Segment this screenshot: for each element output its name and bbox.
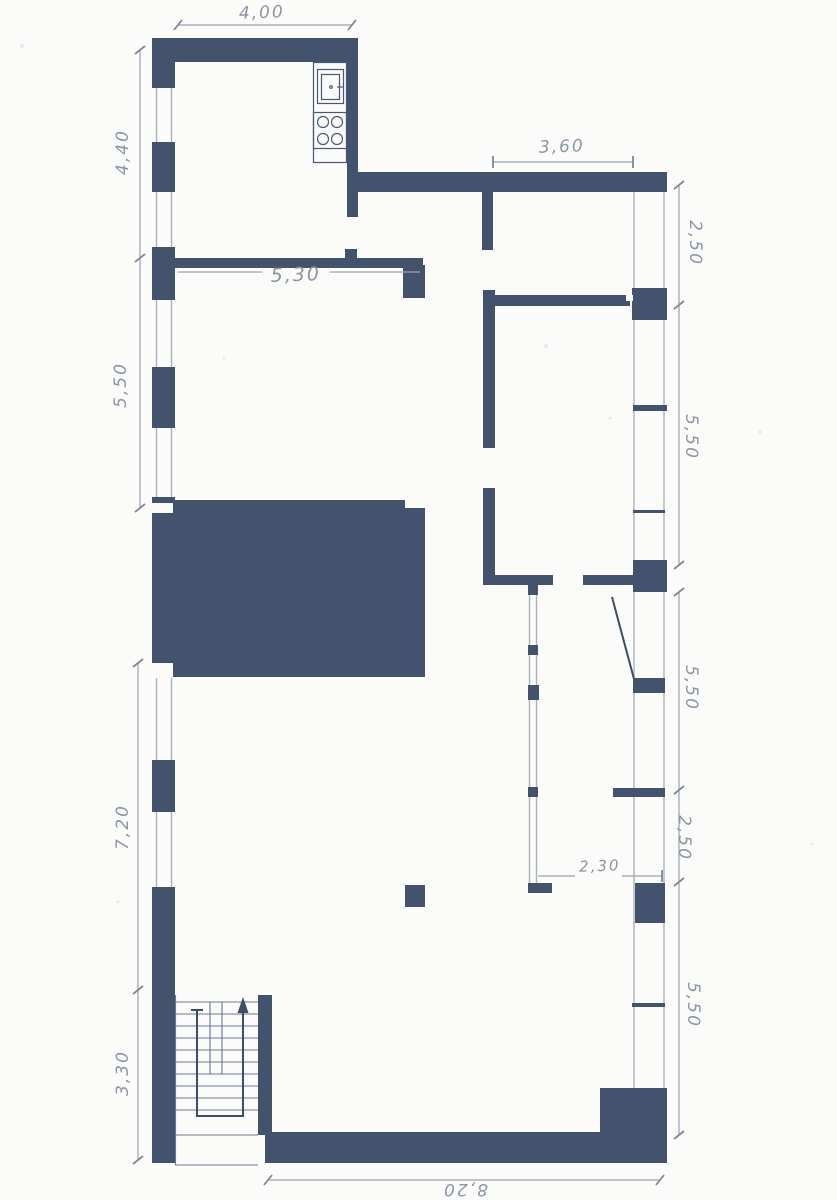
wall-interior-vertical bbox=[483, 488, 495, 585]
up-arrow-icon bbox=[238, 997, 249, 1013]
wall-kitchen-right bbox=[347, 62, 358, 217]
burner bbox=[332, 117, 343, 128]
wall-interior-vertical bbox=[483, 290, 495, 448]
smudge bbox=[544, 344, 548, 348]
wall-left-segment bbox=[152, 497, 175, 503]
wall-stub bbox=[482, 192, 493, 250]
wall-interior-horizontal bbox=[495, 295, 630, 306]
staircase bbox=[175, 995, 258, 1165]
dim-label-room-top-right: 3,60 bbox=[539, 136, 586, 158]
wall-interior-horizontal bbox=[495, 575, 553, 585]
smudge bbox=[222, 356, 225, 359]
window-transom bbox=[632, 1003, 665, 1007]
dim-label-right-1: 2,50 bbox=[685, 220, 705, 266]
dim-label-left-3: 7,20 bbox=[113, 804, 133, 850]
dim-label-left-4: 3,30 bbox=[113, 1050, 133, 1096]
floor-plan-drawing: 4,00 4,40 5,50 7,20 3,30 2,50 5,50 5,50 … bbox=[0, 0, 837, 1200]
dim-label-left-2: 5,50 bbox=[111, 362, 131, 408]
burner bbox=[318, 117, 329, 128]
column bbox=[405, 885, 425, 907]
partition-post bbox=[528, 645, 538, 655]
sink-basin bbox=[322, 75, 340, 100]
wall-notches bbox=[405, 295, 633, 508]
smudge bbox=[117, 901, 120, 904]
dim-label-room-lower-right: 2,30 bbox=[579, 856, 621, 875]
wall-stub bbox=[345, 249, 357, 258]
kitchen-fixtures bbox=[314, 63, 347, 163]
wall-left-segment bbox=[152, 513, 175, 663]
walls bbox=[152, 38, 667, 1163]
smudge bbox=[811, 843, 814, 846]
wall-notch bbox=[626, 295, 633, 301]
wall-right-segment bbox=[633, 678, 665, 693]
partition-base bbox=[528, 883, 552, 893]
stove-icon bbox=[314, 113, 347, 149]
door-swing-line bbox=[612, 597, 634, 679]
wall-left-segment bbox=[152, 760, 175, 812]
wall-left-segment bbox=[152, 367, 175, 428]
smudge bbox=[609, 417, 612, 420]
wall-left-segment bbox=[152, 38, 175, 88]
wall-left-segment bbox=[152, 142, 175, 192]
wall-upper-middle bbox=[352, 172, 667, 192]
dim-label-room-living: 5,30 bbox=[270, 263, 321, 287]
window-transom bbox=[633, 405, 667, 411]
window-transom bbox=[633, 510, 665, 513]
wall-pier bbox=[633, 560, 667, 592]
floor-plan-scan: 4,00 4,40 5,50 7,20 3,30 2,50 5,50 5,50 … bbox=[0, 0, 837, 1200]
dim-label-right-4: 2,50 bbox=[674, 815, 694, 861]
sink-drain bbox=[330, 86, 333, 89]
kitchen-sink-icon bbox=[318, 70, 345, 104]
wall-top-left bbox=[152, 38, 358, 62]
wall-bottom bbox=[265, 1132, 667, 1163]
dim-label-right-2: 5,50 bbox=[681, 414, 701, 460]
wall-interior-horizontal bbox=[583, 575, 633, 585]
smudge bbox=[758, 430, 761, 433]
dim-label-top-width: 4,00 bbox=[239, 2, 286, 24]
wall-pier bbox=[403, 265, 425, 298]
burner bbox=[332, 134, 343, 145]
wall-right-segment bbox=[613, 788, 665, 797]
partition-post bbox=[528, 787, 538, 797]
wall-stair-right bbox=[258, 995, 272, 1135]
smudge bbox=[20, 44, 24, 48]
dim-label-bottom-width: 8,20 bbox=[442, 1179, 488, 1199]
wall-right-segment bbox=[635, 883, 665, 923]
solid-filled-room bbox=[173, 500, 425, 677]
dim-label-right-3: 5,50 bbox=[681, 665, 701, 711]
wall-stub bbox=[528, 585, 538, 595]
wall-left-segment bbox=[152, 887, 175, 1163]
burner bbox=[318, 134, 329, 145]
wall-notch bbox=[405, 500, 425, 508]
wall-left-segment bbox=[152, 247, 175, 300]
dim-label-left-1: 4,40 bbox=[113, 129, 133, 175]
wall-pier bbox=[632, 288, 667, 320]
stove-outline bbox=[314, 113, 347, 149]
dim-label-right-5: 5,50 bbox=[683, 982, 703, 1028]
partition-post bbox=[528, 685, 539, 700]
